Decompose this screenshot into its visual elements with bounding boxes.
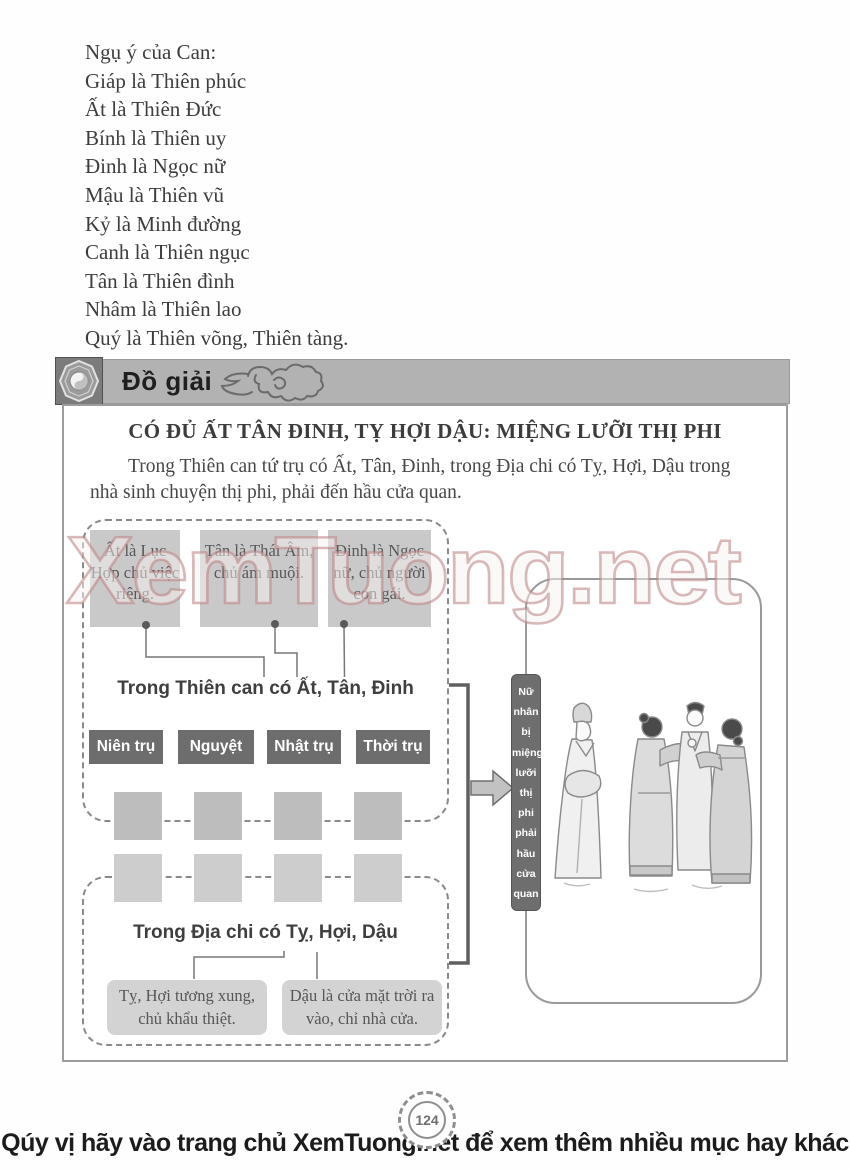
diagram-paragraph: Trong Thiên can tứ trụ có Ất, Tân, Đinh,… [90,454,762,505]
diagram-title: CÓ ĐỦ ẤT TÂN ĐINH, TỴ HỢI DẬU: MIỆNG LƯỠ… [64,419,786,444]
chi-cell [354,854,402,902]
intro-line: Giáp là Thiên phúc [85,67,348,96]
section-header-title: Đồ giải [122,366,212,397]
intro-line: Ất là Thiên Đức [85,95,348,124]
result-word: phải [512,823,540,843]
can-cell [274,792,322,840]
result-word: lưỡi [512,763,540,783]
page-number-medallion: 124 [398,1091,456,1149]
can-cell [114,792,162,840]
intro-line: Canh là Thiên ngục [85,238,348,267]
pillar-nguyet-tru: Nguyệt trụ [178,730,254,764]
chi-cell [274,854,322,902]
result-word: phi [512,803,540,823]
bagua-yinyang-icon [55,357,103,405]
result-word: bị [512,722,540,742]
cloud-scroll-icon [218,362,328,409]
intro-list: Ngụ ý của Can: Giáp là Thiên phúc Ất là … [85,38,348,353]
intro-line: Đinh là Ngọc nữ [85,152,348,181]
intro-line: Ngụ ý của Can: [85,38,348,67]
chi-cell [114,854,162,902]
result-word: nhân [512,702,540,722]
diagram-panel: CÓ ĐỦ ẤT TÂN ĐINH, TỴ HỢI DẬU: MIỆNG LƯỠ… [62,404,788,1062]
arrow-right-icon [471,771,513,805]
note-box-ty-hoi: Tỵ, Hợi tương xung, chủ khẩu thiệt. [107,980,267,1035]
intro-line: Quý là Thiên võng, Thiên tàng. [85,324,348,353]
note-box-dau: Dậu là cửa mặt trời ra vào, chỉ nhà cửa. [282,980,442,1035]
dia-chi-label: Trong Địa chi có Tỵ, Hợi, Dậu [82,922,449,944]
result-word: hầu [512,844,540,864]
intro-line: Kỷ là Minh đường [85,210,348,239]
pillar-nhat-tru: Nhật trụ [267,730,341,764]
intro-line: Mậu là Thiên vũ [85,181,348,210]
chi-cell [194,854,242,902]
result-label: Nữ nhân bị miệng lưỡi thị phi phải hầu c… [511,674,541,911]
result-word: cửa [512,864,540,884]
note-box-tan: Tân là Thái Âm, chủ ám muội. [200,530,318,627]
result-word: thị [512,783,540,803]
result-word: Nữ [512,682,540,702]
can-cell [194,792,242,840]
intro-line: Bính là Thiên uy [85,124,348,153]
page-number: 124 [408,1101,446,1139]
result-word: miệng [512,743,540,763]
pillar-nien-tru: Niên trụ [89,730,163,764]
intro-line: Nhâm là Thiên lao [85,295,348,324]
result-word: quan [512,884,540,904]
thien-can-label: Trong Thiên can có Ất, Tân, Đinh [82,678,449,700]
four-robed-figures-illustration [542,697,757,897]
pillar-thoi-tru: Thời trụ [356,730,430,764]
can-cell [354,792,402,840]
note-box-dinh: Đinh là Ngọc nữ, chủ người con gái. [328,530,431,627]
note-box-at: Ất là Lục Hợp chủ việc riêng. [90,530,180,627]
intro-line: Tân là Thiên đình [85,267,348,296]
